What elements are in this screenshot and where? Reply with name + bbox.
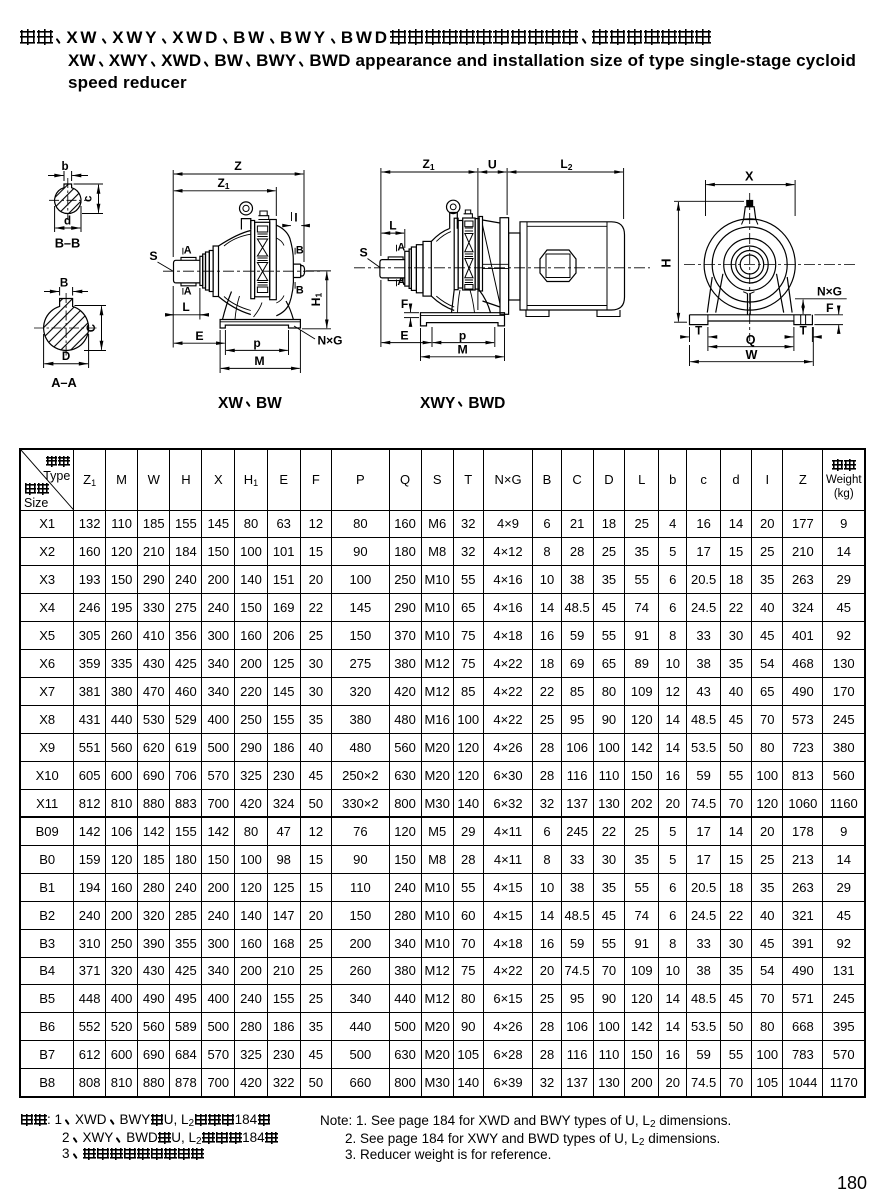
svg-text:L: L <box>182 300 189 314</box>
svg-text:N×G: N×G <box>817 284 842 298</box>
svg-text:H: H <box>660 258 674 267</box>
svg-text:B: B <box>296 245 304 257</box>
svg-text:N×G: N×G <box>317 334 342 348</box>
svg-text:b: b <box>61 160 68 173</box>
svg-text:c: c <box>82 195 95 202</box>
svg-text:S: S <box>359 246 367 260</box>
svg-text:F: F <box>826 301 834 315</box>
svg-text:A: A <box>397 276 405 288</box>
svg-text:T: T <box>695 325 702 338</box>
svg-text:M: M <box>254 354 264 368</box>
svg-text:W: W <box>745 348 757 362</box>
svg-text:F: F <box>401 297 408 311</box>
svg-text:D: D <box>62 350 70 363</box>
svg-text:S: S <box>149 249 157 263</box>
svg-text:A: A <box>184 245 192 257</box>
svg-text:L: L <box>389 219 396 233</box>
svg-text:X: X <box>745 169 754 183</box>
svg-text:B–B: B–B <box>55 236 81 251</box>
svg-text:B: B <box>296 285 304 297</box>
svg-text:p: p <box>253 336 260 350</box>
svg-text:Q: Q <box>746 333 756 347</box>
svg-text:Z1: Z1 <box>423 157 435 172</box>
svg-text:Z1: Z1 <box>217 176 229 191</box>
svg-text:L2: L2 <box>560 157 572 172</box>
svg-text:C: C <box>85 323 98 332</box>
svg-text:Z: Z <box>234 159 242 173</box>
svg-text:p: p <box>459 329 466 343</box>
svg-text:B: B <box>60 277 68 290</box>
svg-text:M: M <box>457 343 467 357</box>
svg-text:A: A <box>184 286 192 298</box>
svg-text:d: d <box>64 215 71 228</box>
svg-text:H1: H1 <box>309 293 324 307</box>
svg-text:I: I <box>294 212 297 225</box>
svg-text:U: U <box>488 158 497 172</box>
svg-text:A–A: A–A <box>51 375 77 390</box>
svg-text:E: E <box>400 328 408 342</box>
svg-text:E: E <box>195 329 203 343</box>
svg-text:T: T <box>800 325 807 338</box>
svg-text:A: A <box>397 242 405 254</box>
